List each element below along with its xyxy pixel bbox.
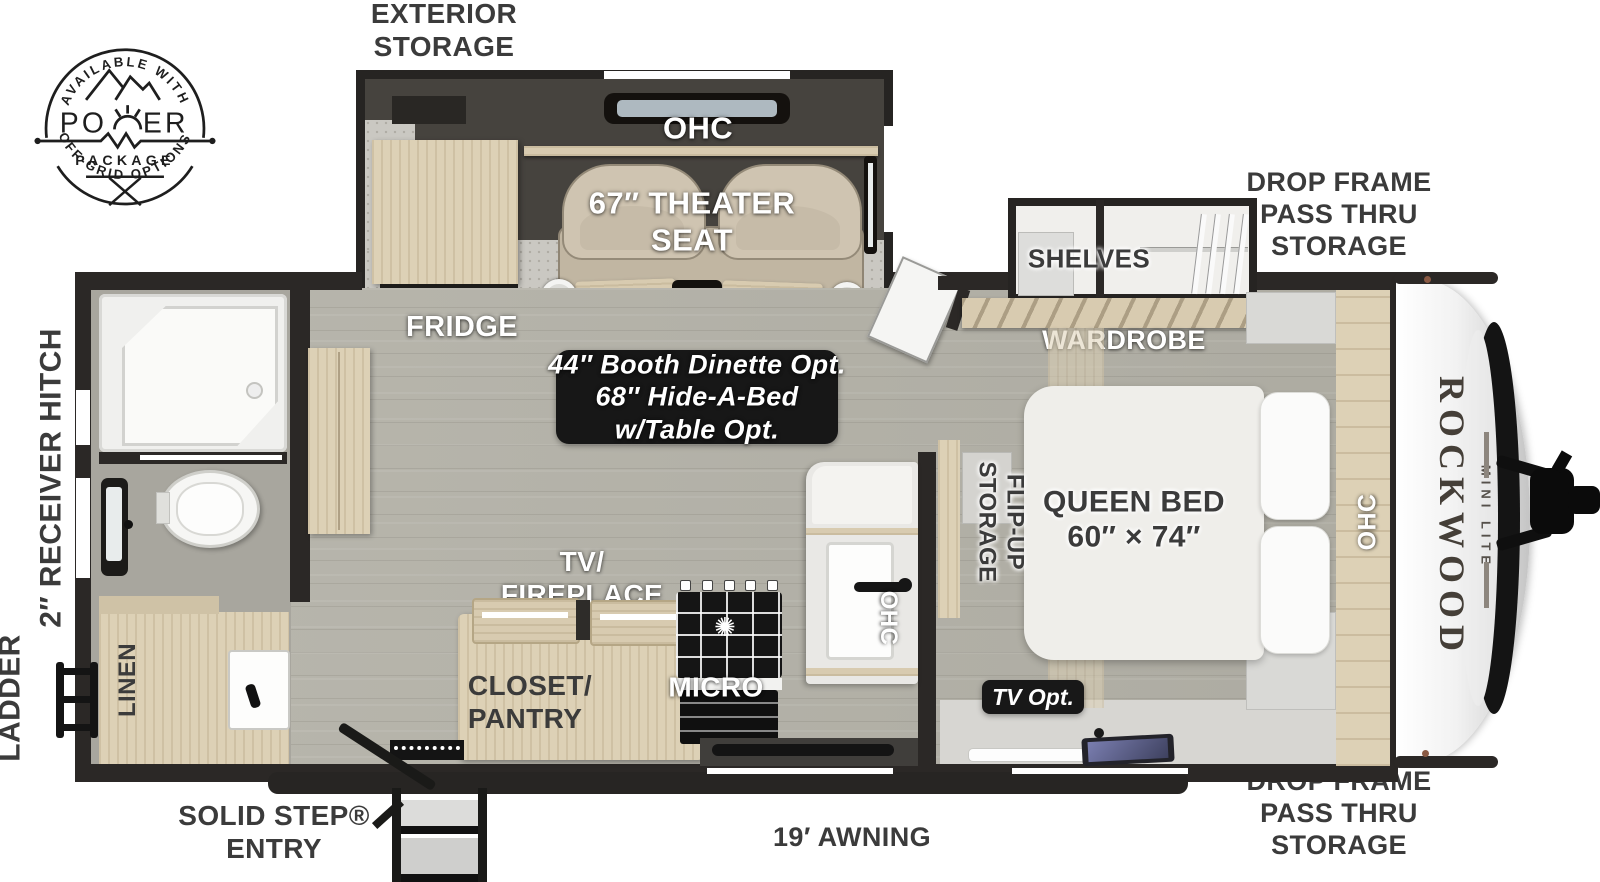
linen-label: LINEN (114, 643, 142, 717)
tv-opt-pill: TV Opt. (982, 680, 1084, 714)
toilet-hinge (156, 492, 170, 524)
wall-window-strip-right (1012, 768, 1188, 774)
brand-rule-bottom (1484, 562, 1489, 608)
hitch-coupler (1568, 486, 1600, 514)
vanity-sink (228, 650, 290, 730)
queen-bed-label: QUEEN BED60″ × 74″ (1043, 485, 1225, 556)
medicine-cabinet-mirror (106, 487, 122, 561)
tv-flat-screen (1088, 738, 1169, 762)
counter-trim-top (806, 528, 918, 535)
fridge-label: FRIDGE (406, 310, 518, 344)
front-cap-top-trim (1394, 272, 1498, 284)
island-tv-inset (576, 600, 590, 640)
receiver-hitch-label: 2″ RECEIVER HITCH (33, 328, 68, 628)
power-package-badge: AVAILABLE WITH OFF-GRID OPTIONS PO ER PA… (25, 22, 225, 222)
ohc-kitchen-label: OHC (874, 591, 902, 646)
exterior-storage-label: EXTERIORSTORAGE (371, 0, 517, 63)
ohc-bedroom-label: OHC (1353, 494, 1383, 551)
theater-seat-label: 67″ THEATERSEAT (589, 185, 795, 258)
line-dot-left (34, 138, 40, 144)
badge-word-right: ER (143, 108, 189, 140)
step-tread-1 (401, 800, 478, 834)
closet-rod (1140, 247, 1248, 252)
kitchen-counter-top (812, 466, 912, 524)
brand-name: ROCKWOOD (1431, 376, 1473, 658)
toilet-seat (176, 482, 244, 536)
flip-up-storage-label: FLIP-UPSTORAGE (972, 461, 1029, 582)
wall-top-right (1255, 272, 1400, 290)
fridge-cabinet (372, 140, 518, 284)
exterior-window-strip-right (884, 126, 895, 232)
medicine-cabinet-knob (124, 520, 133, 529)
awning-label: 19′ AWNING (773, 822, 931, 854)
step-tread-2 (401, 838, 478, 882)
shelves-label: SHELVES (1028, 244, 1150, 275)
range-unit: ✺ (676, 584, 782, 746)
cap-rivet-bottom (1422, 750, 1429, 757)
wall-window-strip-left (707, 768, 893, 774)
badge-word-left: PO (60, 108, 107, 140)
step-rail-right (478, 788, 487, 882)
shower-drain (246, 382, 263, 399)
range-knobs (680, 580, 778, 590)
flip-up-counter (938, 440, 960, 618)
wall-bathroom-divider (290, 282, 310, 602)
pillow-bottom (1260, 526, 1330, 654)
kitchen-floor-tray (712, 744, 894, 756)
ohc-slideout-label: OHC (663, 111, 733, 148)
entry-mat (390, 740, 464, 760)
counter-trim-bottom (806, 668, 918, 676)
nightstand-top (1246, 292, 1336, 344)
badge-arc-top-text: AVAILABLE WITH (57, 54, 192, 107)
front-cap-bottom-trim (1394, 756, 1498, 768)
vanity-step (99, 596, 219, 614)
line-dot-right (209, 138, 215, 144)
shower-door (140, 455, 282, 460)
shower-pan (122, 306, 278, 446)
pillow-top (1260, 392, 1330, 520)
ladder-icon (50, 662, 102, 738)
tv-opt-label: TV Opt. (992, 684, 1074, 711)
ladder-label: LADDER (0, 634, 28, 761)
brand-sub: MINI LITE (1478, 465, 1493, 569)
wall-kitchen-divider (918, 452, 936, 766)
fridge-vent (392, 96, 466, 124)
entry-mat-dots (394, 746, 460, 750)
island-tray-strip-right (600, 614, 684, 620)
dinette-option-label: 44″ Booth Dinette Opt.68″ Hide-A-Bedw/Ta… (548, 348, 846, 445)
island-tray-left (472, 598, 580, 644)
tv-wall-cabinet-seam (338, 352, 340, 530)
rear-window-upper (76, 390, 90, 445)
wardrobe-cabinet (962, 298, 1258, 328)
burner-icon: ✺ (714, 612, 736, 643)
slideout-side-window-glass (868, 163, 873, 247)
micro-label: MICRO (668, 670, 763, 703)
rear-window-lower (76, 478, 90, 578)
drop-frame-pass-thru-top-label: DROP FRAMEPASS THRUSTORAGE (1246, 167, 1431, 263)
entry-steps (330, 780, 500, 882)
cap-rivet-top (1424, 276, 1431, 283)
soundbar (968, 748, 1086, 762)
slideout-exterior-window-strip (604, 71, 790, 79)
sun-icon (114, 105, 140, 129)
island-tray-strip-left (482, 612, 568, 618)
closet-pantry-label: CLOSET/PANTRY (468, 669, 592, 735)
ohc-shelf (524, 146, 878, 156)
svg-text:AVAILABLE WITH: AVAILABLE WITH (57, 54, 192, 107)
wall-top-left (75, 272, 362, 290)
tv-knob (1094, 728, 1104, 738)
brand-rule-top (1484, 432, 1489, 478)
badge-subtitle: PACKAGE (75, 153, 174, 169)
floorplan-rockwood-mini-lite: AVAILABLE WITH OFF-GRID OPTIONS PO ER PA… (0, 0, 1600, 882)
